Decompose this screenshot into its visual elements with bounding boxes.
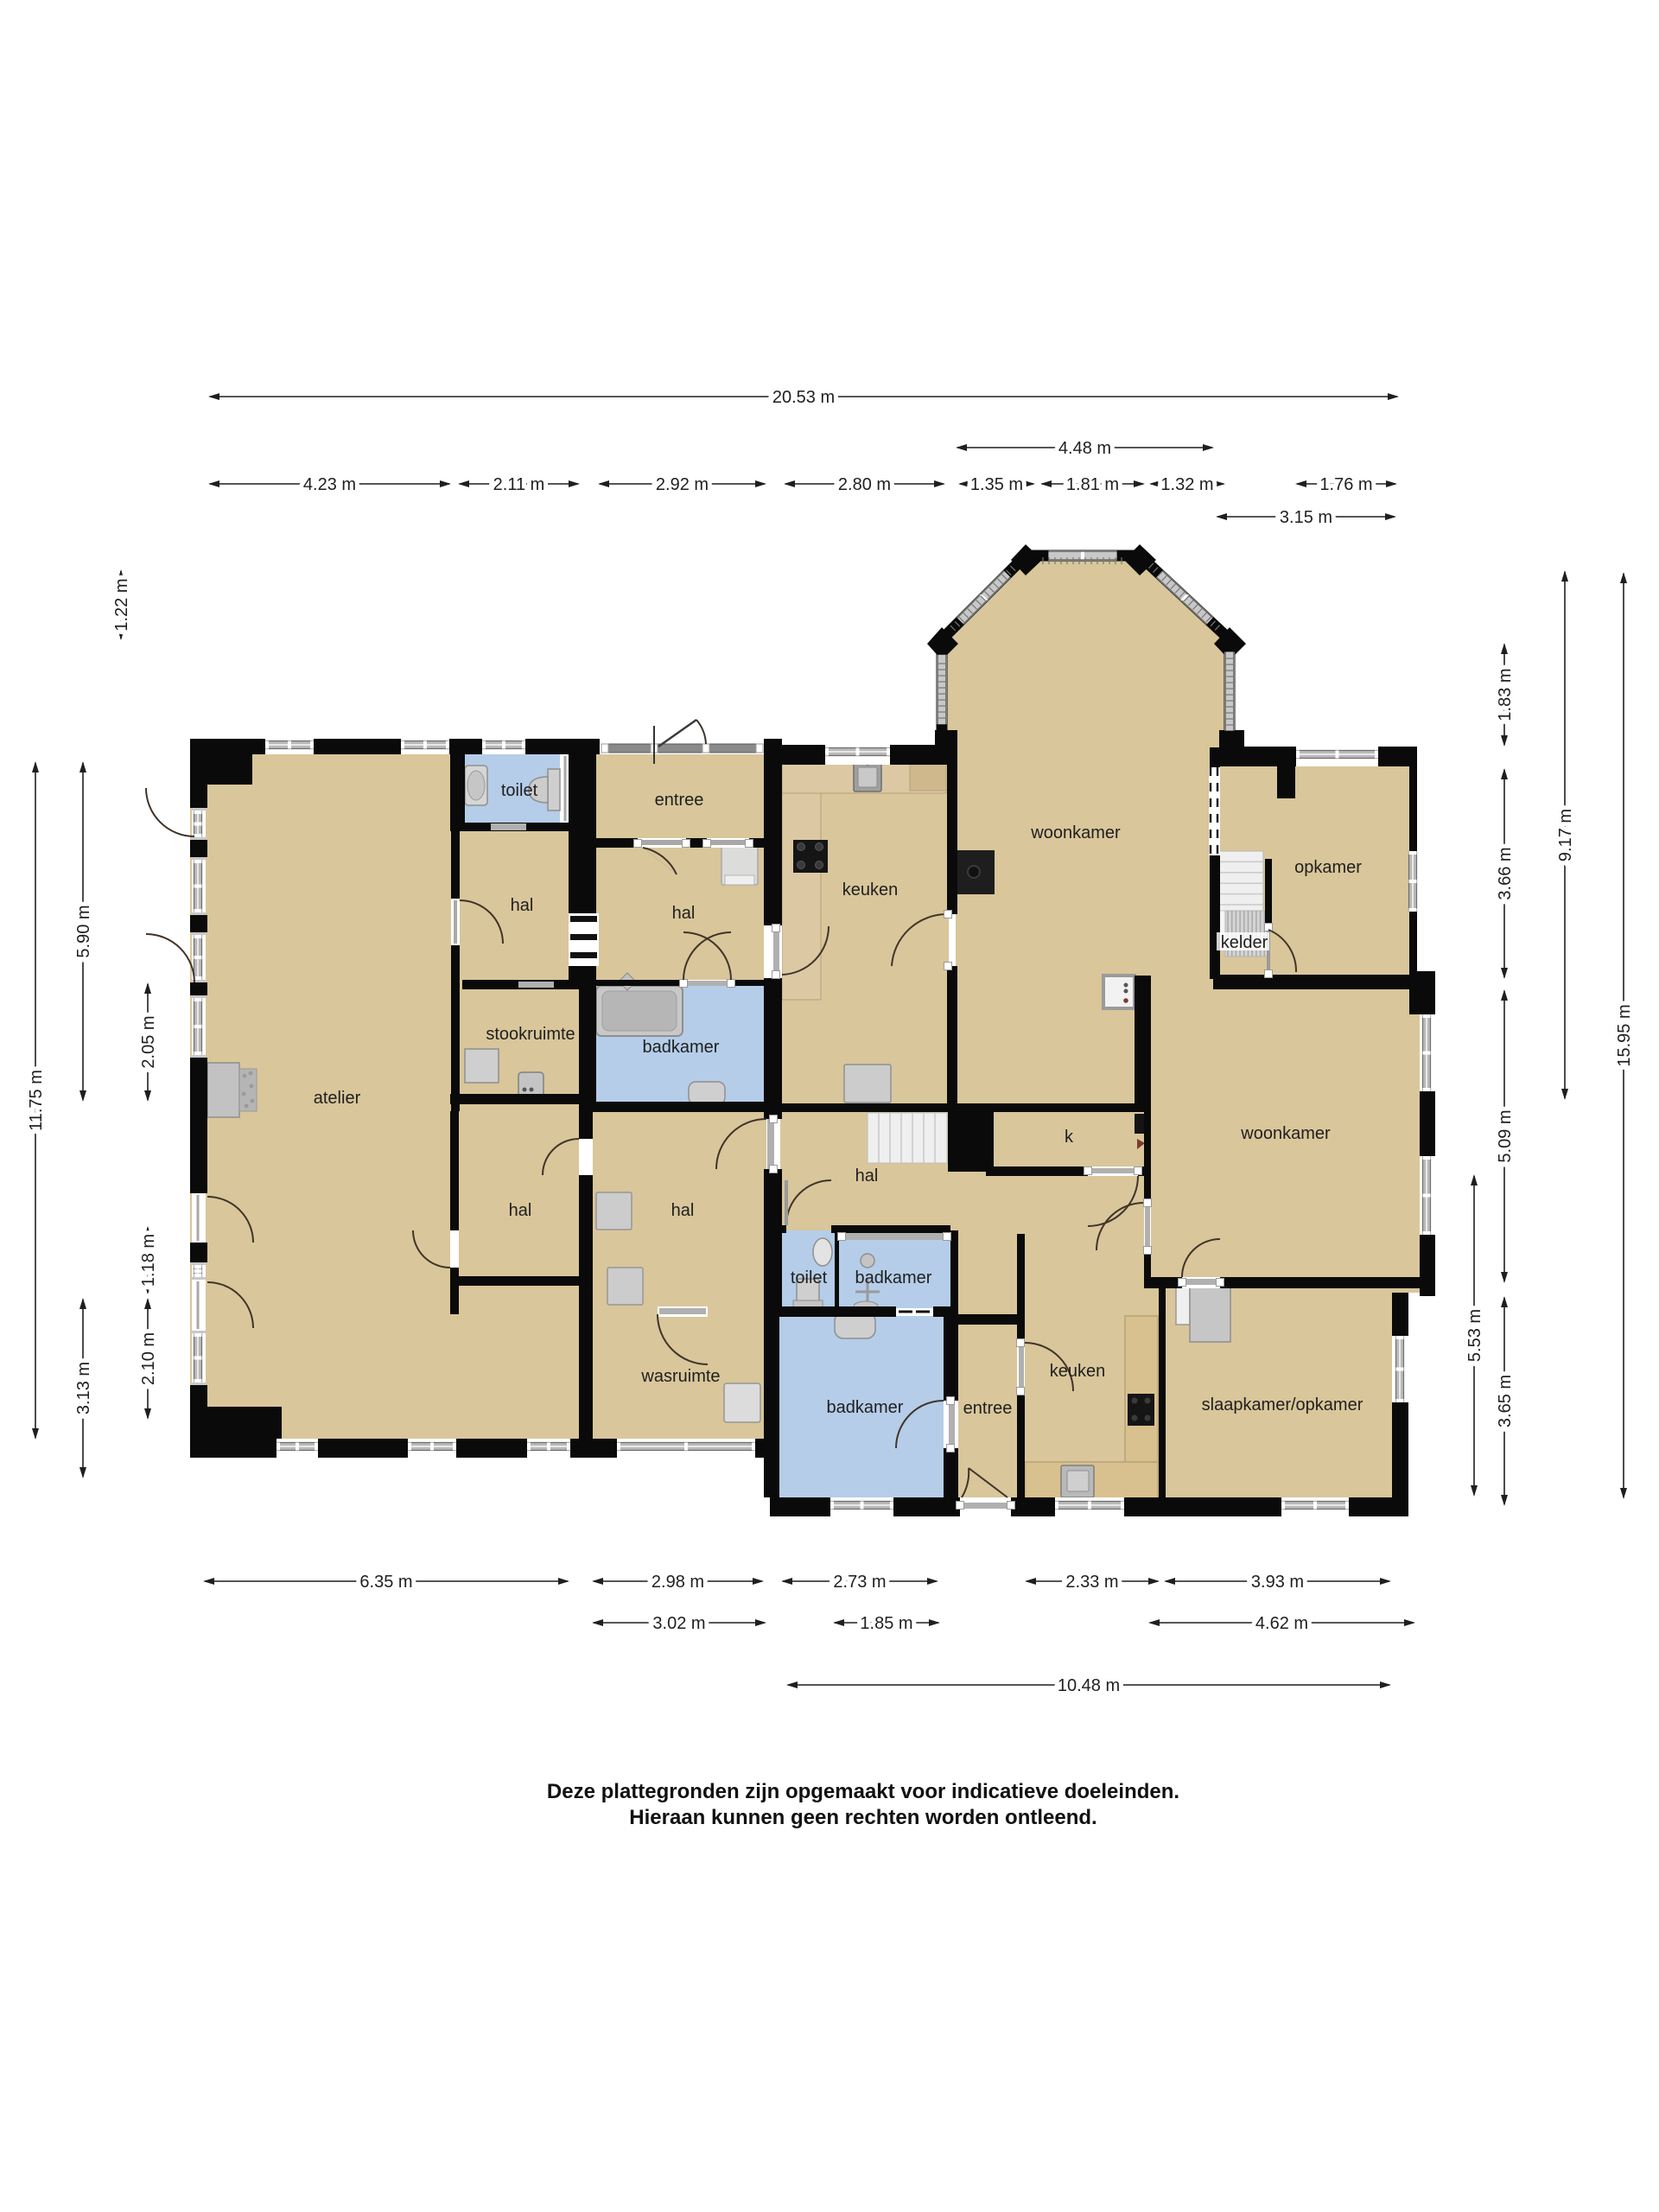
svg-text:entree: entree (963, 1399, 1013, 1418)
svg-text:1.18 m: 1.18 m (139, 1234, 158, 1287)
svg-text:wasruimte: wasruimte (640, 1367, 720, 1386)
svg-text:5.53 m: 5.53 m (1465, 1309, 1484, 1362)
svg-text:2.33 m: 2.33 m (1065, 1573, 1118, 1592)
svg-text:hal: hal (671, 1201, 695, 1220)
svg-text:k: k (1065, 1128, 1074, 1147)
svg-text:3.13 m: 3.13 m (74, 1362, 93, 1414)
svg-text:hal: hal (511, 896, 534, 915)
svg-text:4.62 m: 4.62 m (1255, 1614, 1308, 1633)
svg-text:1.76 m: 1.76 m (1319, 475, 1372, 494)
svg-text:toilet: toilet (501, 781, 538, 800)
svg-text:woonkamer: woonkamer (1030, 823, 1121, 842)
svg-text:2.92 m: 2.92 m (656, 475, 709, 494)
svg-text:2.98 m: 2.98 m (652, 1573, 704, 1592)
svg-text:2.05 m: 2.05 m (139, 1015, 158, 1068)
svg-text:6.35 m: 6.35 m (359, 1573, 412, 1592)
svg-text:5.09 m: 5.09 m (1496, 1109, 1515, 1162)
svg-text:hal: hal (855, 1166, 879, 1185)
svg-text:10.48 m: 10.48 m (1058, 1676, 1120, 1695)
svg-text:atelier: atelier (314, 1089, 361, 1108)
svg-text:3.65 m: 3.65 m (1496, 1375, 1515, 1427)
svg-text:kelder: kelder (1221, 933, 1268, 952)
svg-text:hal: hal (672, 904, 696, 923)
svg-text:3.66 m: 3.66 m (1496, 847, 1515, 899)
svg-text:3.93 m: 3.93 m (1251, 1573, 1304, 1592)
svg-text:1.35 m: 1.35 m (970, 475, 1023, 494)
svg-text:stookruimte: stookruimte (486, 1025, 575, 1044)
svg-text:opkamer: opkamer (1294, 858, 1362, 877)
svg-text:9.17 m: 9.17 m (1556, 809, 1575, 861)
svg-text:3.15 m: 3.15 m (1280, 508, 1332, 527)
svg-text:Deze plattegronden zijn opgema: Deze plattegronden zijn opgemaakt voor i… (547, 1780, 1179, 1803)
svg-text:5.90 m: 5.90 m (74, 905, 93, 957)
svg-text:1.85 m: 1.85 m (860, 1614, 912, 1633)
svg-text:hal: hal (509, 1201, 532, 1220)
svg-text:3.02 m: 3.02 m (652, 1614, 705, 1633)
svg-text:2.10 m: 2.10 m (139, 1332, 158, 1385)
svg-text:toilet: toilet (791, 1268, 828, 1287)
svg-text:Hieraan kunnen geen rechten wo: Hieraan kunnen geen rechten worden ontle… (629, 1806, 1096, 1829)
svg-text:2.73 m: 2.73 m (833, 1573, 886, 1592)
svg-text:1.22 m: 1.22 m (112, 578, 131, 631)
svg-text:2.11 m: 2.11 m (493, 475, 545, 494)
svg-text:1.81 m: 1.81 m (1066, 475, 1119, 494)
svg-text:slaapkamer/opkamer: slaapkamer/opkamer (1202, 1395, 1363, 1414)
svg-text:1.83 m: 1.83 m (1496, 668, 1515, 721)
svg-text:badkamer: badkamer (827, 1398, 904, 1417)
svg-text:entree: entree (655, 791, 704, 810)
svg-text:4.23 m: 4.23 m (303, 475, 356, 494)
svg-text:badkamer: badkamer (855, 1268, 932, 1287)
svg-text:1.32 m: 1.32 m (1160, 475, 1213, 494)
svg-text:15.95 m: 15.95 m (1615, 1004, 1634, 1066)
svg-text:11.75 m: 11.75 m (27, 1070, 46, 1131)
svg-text:4.48 m: 4.48 m (1058, 439, 1111, 458)
svg-text:20.53 m: 20.53 m (772, 388, 835, 407)
svg-text:keuken: keuken (842, 880, 899, 899)
svg-text:2.80 m: 2.80 m (838, 475, 891, 494)
svg-text:badkamer: badkamer (643, 1038, 720, 1057)
svg-text:keuken: keuken (1050, 1362, 1106, 1381)
svg-text:woonkamer: woonkamer (1240, 1124, 1331, 1143)
